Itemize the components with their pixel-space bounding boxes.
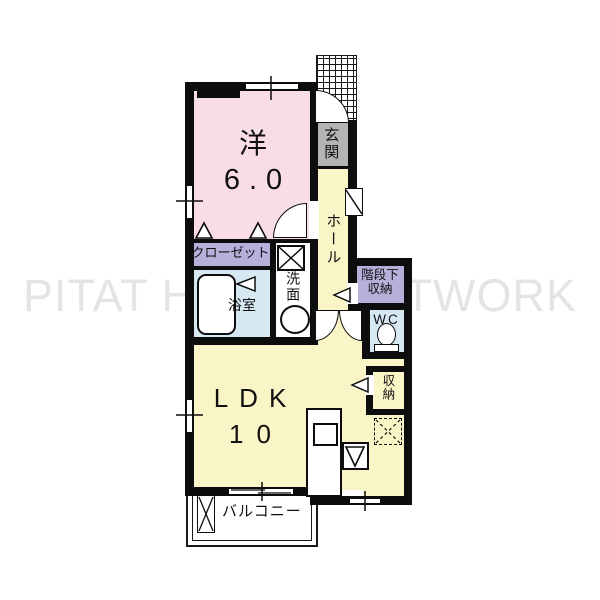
wall-wc-bottom xyxy=(362,352,412,359)
closet-label: クローゼット xyxy=(190,246,271,261)
washroom-label: 洗面 xyxy=(285,271,301,303)
stove-unit xyxy=(342,442,369,470)
floorplan-canvas: PITAT HOUSE NETWORK xyxy=(0,0,600,600)
bathroom-label: 浴室 xyxy=(228,297,256,313)
western-room-name: 洋 xyxy=(193,128,313,160)
western-room-size: 6.0 xyxy=(193,164,313,197)
wall-under-stairs-top xyxy=(348,258,412,266)
balcony-washer-space xyxy=(197,495,215,533)
window-western-top xyxy=(246,82,298,91)
kitchen-sink xyxy=(313,423,338,446)
entrance-hall-divider xyxy=(314,166,349,169)
ldk-size: 10 xyxy=(190,420,310,450)
ldk-name: LDK xyxy=(190,384,310,414)
storage-label: 収納 xyxy=(380,374,394,401)
washbasin xyxy=(280,305,310,334)
wall-closet-bottom xyxy=(189,266,272,270)
toilet-tank xyxy=(374,344,399,352)
entrance-label: 玄関 xyxy=(322,127,339,161)
under-stairs-label-line2: 収納 xyxy=(355,282,405,296)
kitchen-counter xyxy=(306,408,342,497)
wall-right-exterior xyxy=(404,258,412,505)
wc-label: WC xyxy=(368,312,405,328)
window-ldk-bottom xyxy=(350,497,380,505)
hall-label: ホール xyxy=(324,213,341,267)
storage-door-opening xyxy=(365,375,374,395)
sliding-door-balcony xyxy=(229,487,293,496)
wall-beam-western-room xyxy=(197,90,240,98)
shoe-cabinet xyxy=(345,188,363,216)
wall-closet-top xyxy=(189,239,318,243)
ldk-label: LDK 10 xyxy=(190,384,310,450)
wall-under-stairs-bottom xyxy=(352,303,404,310)
western-room-label: 洋 6.0 xyxy=(193,128,313,198)
washer-pan xyxy=(277,245,305,271)
balcony-label: バルコニー xyxy=(222,503,302,520)
under-stairs-label: 階段下 収納 xyxy=(355,268,405,297)
under-stairs-label-line1: 階段下 xyxy=(355,268,405,282)
wall-bath-ldk xyxy=(185,337,312,345)
wall-storage-bottom xyxy=(366,409,412,415)
western-door-opening xyxy=(309,201,319,239)
refrigerator-space xyxy=(374,418,402,445)
